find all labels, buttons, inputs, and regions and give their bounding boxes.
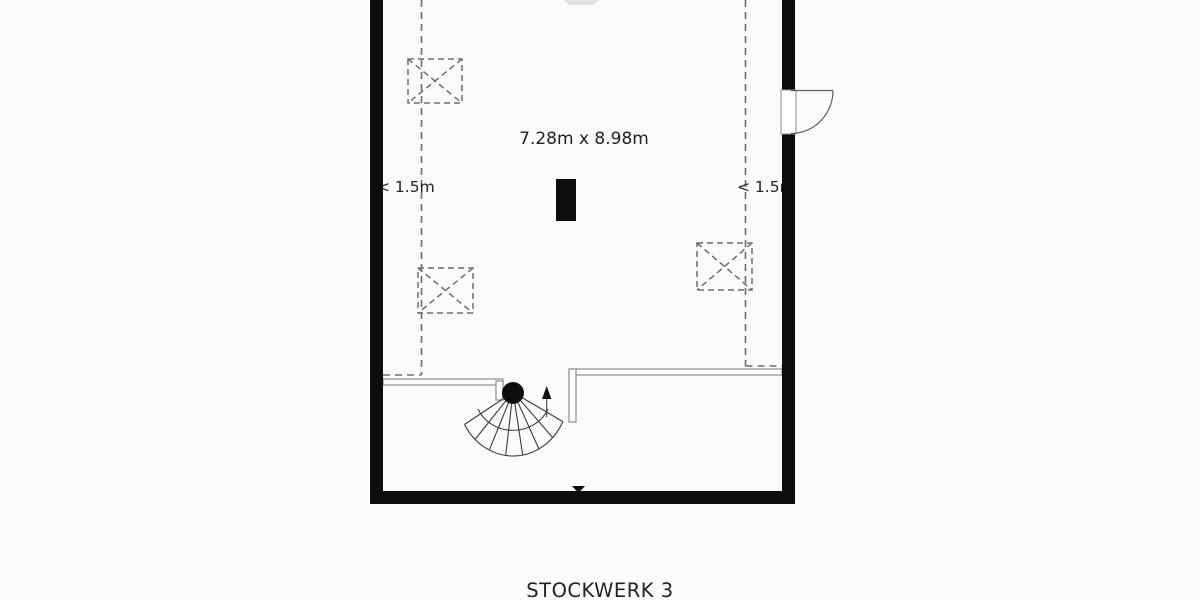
room-dimensions-label: 7.28m x 8.98m: [519, 129, 649, 149]
skylight-cross-icon: [418, 268, 473, 313]
floor-plan-page: 7.28m x 8.98m < 1.5m < 1.5m: [0, 0, 1200, 600]
skylight-cross-icon: [408, 59, 462, 103]
stair-up-arrow-icon: [542, 386, 551, 399]
room-labels: 7.28m x 8.98m < 1.5m < 1.5m: [377, 129, 795, 196]
stair-tread-lines: [465, 398, 563, 456]
chimney: [556, 179, 576, 221]
skylight-bottom-left: [418, 268, 473, 313]
stairwell-walls: [383, 369, 782, 422]
door: [781, 90, 833, 134]
wall-bottom: [370, 491, 795, 504]
stair-newel-post: [502, 382, 524, 404]
skylights: [408, 59, 752, 313]
stairwell-wall-right-vertical: [569, 369, 576, 422]
wall-right: [782, 0, 795, 504]
door-swing: [791, 91, 833, 134]
stair-treads: [465, 398, 563, 456]
roof-clearance-lines: [383, 0, 782, 375]
exterior-walls: [370, 0, 795, 504]
top-faint-marker: [563, 0, 599, 5]
wall-left: [370, 0, 383, 504]
stairwell-wall-left-horizontal: [383, 379, 503, 385]
stairwell-wall-right-horizontal: [569, 369, 782, 375]
door-opening: [781, 90, 796, 134]
left-clearance-label: < 1.5m: [377, 178, 435, 196]
floor-caption: STOCKWERK 3: [526, 579, 673, 600]
floor-plan-canvas: 7.28m x 8.98m < 1.5m < 1.5m: [0, 0, 1200, 600]
winder-staircase: [383, 369, 782, 456]
stair-outer-arc: [465, 422, 563, 456]
skylight-cross-icon: [697, 243, 752, 290]
skylight-right: [697, 243, 752, 290]
stairwell-wall-left-vertical: [496, 381, 503, 400]
door-swing-arc: [791, 91, 833, 134]
skylight-top-left: [408, 59, 462, 103]
